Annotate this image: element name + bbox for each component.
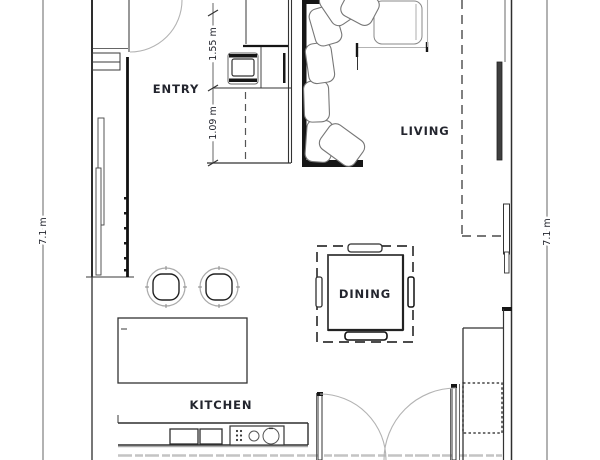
dining-chair [316,277,322,307]
dining-chair [408,277,414,307]
wall-panel [497,62,502,160]
entry-door [129,0,182,52]
dimension-entry-lower-label: 1.09 m [208,106,219,139]
door-leaf [318,394,322,460]
cooktop [230,426,284,445]
living-label: LIVING [400,124,449,138]
dimension-left-label: 7.1 m [38,217,49,244]
kitchen-sink [200,429,222,444]
kitchen-island [118,318,247,383]
dimension-left: 7.1 m [38,0,49,460]
door-swing-arc [384,388,456,460]
french-doors [317,384,458,460]
floor-plan-canvas: 7.1 m 7.1 m 1.55 m 1.09 m [0,0,600,460]
door-leaf [452,386,456,460]
dining-chair [345,332,387,340]
dining-label: DINING [339,287,391,301]
dimension-right-label: 7.1 m [542,218,553,245]
bar-stool [145,266,187,308]
dining-set: DINING [316,244,414,342]
entry-label: ENTRY [153,82,199,96]
wall-wardrobe [96,57,128,277]
dining-chair [348,244,382,252]
wall-window [504,204,510,254]
kitchen-sink [170,429,198,444]
sofa [303,0,422,169]
entry-cabinet [92,49,128,71]
dimension-entry: 1.55 m 1.09 m [208,3,219,166]
walls [86,0,512,460]
sofa-chaise [374,1,422,44]
dimension-right: 7.1 m [542,0,553,460]
wall-window [505,252,510,273]
dimension-entry-upper-label: 1.55 m [208,27,219,60]
appliance-dashed [463,383,502,433]
kitchen: KITCHEN [118,266,502,456]
door-swing-arc [130,0,182,52]
cabinet-bottom-right [460,328,504,460]
floor-plan: 7.1 m 7.1 m 1.55 m 1.09 m [0,0,600,460]
kitchen-label: KITCHEN [190,398,253,412]
bar-stool [198,266,240,308]
armchair [228,53,258,84]
door-swing-arc [320,394,386,460]
kitchen-counter [118,415,502,456]
